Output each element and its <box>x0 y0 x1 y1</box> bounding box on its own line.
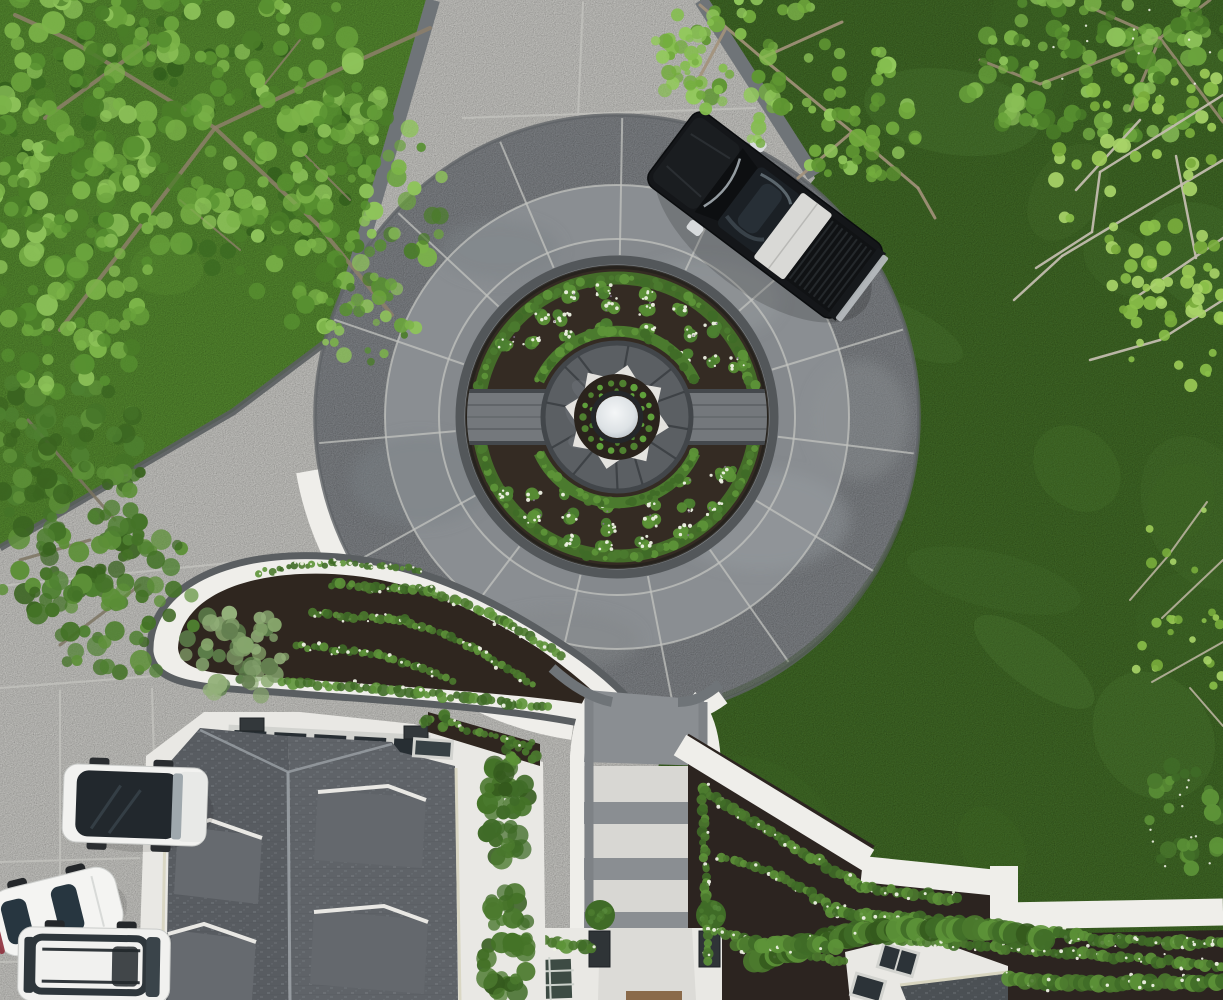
hedge-clump <box>313 681 323 691</box>
foliage-clump <box>1209 268 1219 278</box>
flower-dot <box>505 627 508 630</box>
foliage-clump <box>1151 659 1163 671</box>
foliage-clump <box>1151 618 1161 628</box>
foliage-clump <box>44 255 64 275</box>
foliage-clump <box>172 540 183 551</box>
foliage-clump <box>142 616 156 630</box>
flower-dot <box>526 493 530 497</box>
hedge-clump <box>350 646 359 655</box>
flower-cluster <box>707 325 720 338</box>
bush-clump <box>1164 803 1175 814</box>
foliage-clump <box>85 279 106 300</box>
flower-dot <box>683 305 687 309</box>
foliage-clump <box>1156 241 1171 256</box>
flower-dot <box>688 524 692 528</box>
plant-dot <box>588 392 594 398</box>
flower-dot <box>848 873 852 877</box>
flower-dot <box>610 295 612 297</box>
foliage-clump <box>651 36 660 45</box>
flower-dot <box>564 658 566 660</box>
foliage-clump <box>96 185 114 203</box>
flower-dot <box>357 567 361 571</box>
bush-clump <box>1180 769 1190 779</box>
foliage-clump <box>373 319 380 326</box>
hedge-clump <box>677 468 684 475</box>
foliage-clump <box>1079 64 1093 78</box>
plant-dot <box>619 447 626 454</box>
foliage-clump <box>1182 265 1196 279</box>
flower-dot <box>544 316 548 320</box>
hedge-clump <box>750 380 760 390</box>
foliage-clump <box>358 164 372 178</box>
foliage-clump <box>802 98 812 108</box>
hedge-clump <box>660 486 666 492</box>
hedge-clump <box>349 614 358 623</box>
hedge-clump <box>547 470 555 478</box>
hedge-column <box>476 967 498 989</box>
foliage-clump <box>1125 27 1139 41</box>
shrub-clump <box>203 684 216 697</box>
foliage-clump <box>1121 273 1132 284</box>
flower-dot <box>884 892 887 895</box>
foliage-clump <box>86 403 107 424</box>
fountain-hub <box>541 341 693 493</box>
foliage-clump <box>235 266 245 276</box>
flower-dot <box>1072 949 1075 952</box>
flower-dot <box>570 330 573 333</box>
foliage-clump <box>380 310 392 322</box>
flower-dot <box>610 547 614 551</box>
foliage-clump <box>877 58 892 73</box>
hedge-clump <box>635 279 640 284</box>
foliage-clump <box>1025 95 1044 114</box>
gravel-path-horizontal <box>862 869 1008 884</box>
foliage-clump <box>339 303 352 316</box>
plant-dot <box>582 425 589 432</box>
flower-dot <box>873 915 877 919</box>
hedge-clump <box>565 486 573 494</box>
foliage-clump <box>1143 296 1157 310</box>
foliage-clump <box>434 229 444 239</box>
foliage-clump <box>871 95 880 104</box>
hedge-clump <box>576 277 585 286</box>
foliage-clump <box>305 162 314 171</box>
flower-dot <box>1043 950 1046 953</box>
foliage-clump <box>407 181 421 195</box>
foliage-clump <box>43 542 57 556</box>
skylight <box>413 739 452 759</box>
foliage-clump <box>1190 15 1210 35</box>
flower-dot <box>319 612 321 614</box>
gravel-path-lower <box>1004 912 1223 916</box>
foliage-clump <box>1155 95 1165 105</box>
foliage-clump <box>43 405 55 417</box>
hedge-clump <box>543 290 553 300</box>
shrub-dot <box>598 911 604 917</box>
flower-dot <box>1047 978 1051 982</box>
hedge-clump <box>429 627 436 634</box>
foliage-shadow <box>153 67 166 80</box>
flower-dot <box>318 561 321 564</box>
flower-dot <box>754 863 757 866</box>
flower-dot <box>611 544 613 546</box>
flower-dot <box>714 365 716 367</box>
flower-dot <box>575 518 578 521</box>
foliage-clump <box>899 102 916 119</box>
parterre-garden <box>466 266 768 568</box>
plant-dot <box>588 436 594 442</box>
flower-dot <box>569 538 572 541</box>
foliage-clump <box>86 228 96 238</box>
flower-dot <box>400 661 403 664</box>
flower-dot <box>512 341 514 343</box>
foliage-clump <box>404 243 420 259</box>
hedge-clump <box>675 292 681 298</box>
flower-dot <box>689 479 691 481</box>
flower-dot <box>713 508 716 511</box>
foliage-clump <box>1 349 14 362</box>
mottle <box>440 220 560 280</box>
foliage-clump <box>42 354 53 365</box>
foliage-clump <box>98 212 114 228</box>
foliage-clump <box>317 198 333 214</box>
foliage-clump <box>101 385 115 399</box>
hedge-clump <box>504 503 509 508</box>
hedge-clump <box>700 304 705 309</box>
foliage-clump <box>707 19 714 26</box>
flower-dot <box>721 930 724 933</box>
hedge-clump <box>352 561 358 567</box>
flower-dot <box>642 298 644 300</box>
flower-dot <box>1046 989 1049 992</box>
hedge-clump <box>323 609 333 619</box>
flower-dot <box>300 562 304 566</box>
foliage-clump <box>312 37 324 49</box>
hedge-column <box>497 884 513 900</box>
foliage-clump <box>65 209 78 222</box>
foliage-clump <box>91 536 109 554</box>
foliage-clump <box>871 74 883 86</box>
flower-dot <box>611 302 614 305</box>
foliage-clump <box>257 176 268 187</box>
shrub-clump <box>213 649 226 662</box>
hedge-clump <box>579 549 584 554</box>
foliage-clump <box>1209 682 1217 690</box>
foliage-clump <box>32 142 43 153</box>
foliage-clump <box>1038 42 1048 52</box>
flower-dot <box>1197 978 1200 981</box>
foliage-clump <box>54 214 65 225</box>
foliage-clump <box>333 279 342 288</box>
flower-dot <box>731 367 734 370</box>
flower-dot <box>740 950 744 954</box>
blossom-dot <box>1194 83 1196 85</box>
foliage-clump <box>223 156 237 170</box>
hedge-clump <box>688 298 696 306</box>
flower-dot <box>783 843 787 847</box>
foliage-clump <box>1159 330 1170 341</box>
foliage-clump <box>1083 128 1095 140</box>
flower-dot <box>644 296 648 300</box>
flower-dot <box>568 512 570 514</box>
white-van <box>60 756 215 854</box>
foliage-clump <box>1208 240 1220 252</box>
foliage-clump <box>102 479 113 490</box>
foliage-clump <box>217 11 235 29</box>
flower-dot <box>809 935 811 937</box>
hedge-clump <box>262 567 267 572</box>
foliage-clump <box>53 484 73 504</box>
aerial-photo-stage <box>0 0 1223 1000</box>
flower-dot <box>523 516 526 519</box>
foliage-clump <box>383 150 395 162</box>
shrub-clump <box>180 648 193 661</box>
flower-dot <box>813 901 817 905</box>
flower-dot <box>608 531 610 533</box>
hedge-clump <box>359 611 369 621</box>
flower-dot <box>730 364 734 368</box>
foliage-clump <box>909 133 921 145</box>
flower-dot <box>716 323 718 325</box>
foliage-clump <box>202 215 216 229</box>
flower-dot <box>1149 829 1151 831</box>
foliage-clump <box>336 347 352 363</box>
white-suv <box>17 920 170 1000</box>
flower-cluster <box>600 525 612 537</box>
bush-clump <box>1164 758 1181 775</box>
flower-dot <box>358 649 361 652</box>
plant-dot <box>646 403 652 409</box>
flower-dot <box>501 495 503 497</box>
foliage-clump <box>216 44 230 58</box>
flower-dot <box>651 328 654 331</box>
foliage-clump <box>1152 149 1162 159</box>
foliage-clump <box>67 257 89 279</box>
foliage-clump <box>1163 277 1173 287</box>
foliage-clump <box>103 43 117 57</box>
foliage-clump <box>1136 339 1144 347</box>
hedge-clump <box>640 278 651 289</box>
hedge-column <box>503 933 523 953</box>
foliage-clump <box>374 239 386 251</box>
foliage-clump <box>42 318 55 331</box>
foliage-clump <box>811 158 826 173</box>
foliage-clump <box>372 290 387 305</box>
flower-dot <box>608 290 610 292</box>
hedge-clump <box>523 678 531 686</box>
foliage-clump <box>1128 243 1143 258</box>
foliage-clump <box>145 51 156 62</box>
foliage-clump <box>868 165 882 179</box>
flower-dot <box>907 897 910 900</box>
flower-dot <box>606 510 608 512</box>
hedge-clump <box>506 740 512 746</box>
foliage-clump <box>1106 27 1126 47</box>
flower-dot <box>493 622 497 626</box>
flower-dot <box>602 523 604 525</box>
foliage-clump <box>24 485 41 502</box>
foliage-clump <box>1197 309 1206 318</box>
shrub-dot <box>588 909 595 916</box>
flower-dot <box>566 542 569 545</box>
foliage-clump <box>1124 259 1138 273</box>
blossom-dot <box>1133 28 1135 30</box>
plant-dot <box>608 380 614 386</box>
foliage-clump <box>139 18 149 28</box>
flower-dot <box>894 943 896 945</box>
foliage-clump <box>140 185 152 197</box>
foliage-clump <box>290 161 302 173</box>
foliage-clump <box>22 139 34 151</box>
foliage-clump <box>13 516 34 537</box>
flower-dot <box>716 805 720 809</box>
suv-rear-window <box>24 937 35 993</box>
foliage-clump <box>47 512 57 522</box>
hedge-column <box>496 805 510 819</box>
foliage-clump <box>1123 104 1131 112</box>
foliage-clump <box>59 538 70 549</box>
foliage-clump <box>130 306 149 325</box>
foliage-clump <box>274 245 287 258</box>
foliage-clump <box>850 106 861 117</box>
foliage-clump <box>832 66 847 81</box>
hedge-clump <box>679 362 688 371</box>
flower-dot <box>715 857 718 860</box>
flower-dot <box>924 892 927 895</box>
door-mat <box>626 991 682 1000</box>
foliage-clump <box>1195 110 1208 123</box>
foliage-clump <box>156 32 172 48</box>
foliage-clump <box>226 171 245 190</box>
foliage-clump <box>852 155 862 165</box>
foliage-clump <box>1194 240 1208 254</box>
flower-dot <box>643 517 647 521</box>
hedge-clump <box>335 578 346 589</box>
flower-dot <box>862 916 866 920</box>
flower-dot <box>695 332 698 335</box>
foliage-clump <box>988 35 997 44</box>
foliage-clump <box>1117 139 1131 153</box>
foliage-clump <box>1186 96 1199 109</box>
flower-dot <box>378 590 381 593</box>
flower-dot <box>371 566 373 568</box>
foliage-clump <box>1209 349 1217 357</box>
foliage-clump <box>979 58 987 66</box>
shrub-dot <box>594 917 600 923</box>
flower-dot <box>342 620 345 623</box>
flower-dot <box>502 338 504 340</box>
flower-dot <box>572 296 576 300</box>
entry-slab <box>598 928 696 1000</box>
flower-dot <box>366 650 369 653</box>
hedge-mass <box>828 939 844 955</box>
foliage-clump <box>744 87 759 102</box>
flower-dot <box>703 324 706 327</box>
foliage-clump <box>251 229 265 243</box>
flower-dot <box>1164 953 1166 955</box>
foliage-clump <box>1052 142 1066 156</box>
flower-dot <box>793 847 796 850</box>
foliage-clump <box>315 262 335 282</box>
foliage-clump <box>195 51 207 63</box>
foliage-clump <box>1005 93 1025 113</box>
flower-dot <box>533 519 536 522</box>
flower-dot <box>538 519 541 522</box>
hedge-clump <box>688 533 694 539</box>
foliage-clump <box>29 587 40 598</box>
flower-dot <box>502 490 504 492</box>
hedge-clump <box>337 682 346 691</box>
foliage-clump <box>149 664 163 678</box>
foliage-clump <box>10 561 29 580</box>
foliage-clump <box>1201 507 1207 513</box>
flower-dot <box>527 522 529 524</box>
foliage-clump <box>29 191 48 210</box>
foliage-clump <box>344 241 355 252</box>
foliage-clump <box>1200 69 1210 79</box>
bush-clump <box>1190 767 1201 778</box>
foliage-clump <box>1104 185 1116 197</box>
flower-dot <box>612 523 615 526</box>
flower-dot <box>1077 938 1079 940</box>
flower-dot <box>531 338 534 341</box>
hedge-clump <box>404 660 411 667</box>
foliage-clump <box>288 67 303 82</box>
shrub-dot <box>710 914 716 920</box>
hedge-clump <box>609 275 614 280</box>
hedge-clump <box>708 311 718 321</box>
hedge-clump <box>481 731 488 738</box>
flower-dot <box>613 525 616 528</box>
hedge-clump <box>723 855 730 862</box>
hedge-clump <box>554 288 562 296</box>
flower-dot <box>596 283 600 287</box>
flower-dot <box>596 293 599 296</box>
hedge-clump <box>734 480 744 490</box>
hedge-clump <box>713 511 723 521</box>
foliage-clump <box>283 194 301 212</box>
foliage-clump <box>117 24 129 36</box>
hedge-clump <box>703 957 712 966</box>
foliage-clump <box>318 124 332 138</box>
bush-clump <box>1172 773 1181 782</box>
foliage-clump <box>1191 567 1198 574</box>
flower-dot <box>737 816 739 818</box>
hedge-clump <box>482 462 491 471</box>
foliage-clump <box>61 622 81 642</box>
foliage-clump <box>164 16 179 31</box>
hedge-column <box>482 897 503 918</box>
foliage-clump <box>1042 80 1051 89</box>
foliage-clump <box>147 576 164 593</box>
shrub-clump <box>179 630 196 647</box>
small-skylight <box>413 739 452 759</box>
foliage-clump <box>1094 112 1113 131</box>
foliage-clump <box>63 135 80 152</box>
foliage-clump <box>4 507 15 518</box>
flower-dot <box>649 541 653 545</box>
foliage-clump <box>96 236 108 248</box>
flower-dot <box>649 307 651 309</box>
foliage-clump <box>109 594 126 611</box>
plant-dot <box>645 425 652 432</box>
flower-dot <box>1209 862 1211 864</box>
foliage-clump <box>60 427 71 438</box>
flower-dot <box>518 679 521 682</box>
flower-dot <box>1076 957 1079 960</box>
foliage-clump <box>165 120 186 141</box>
foliage-clump <box>259 92 275 108</box>
